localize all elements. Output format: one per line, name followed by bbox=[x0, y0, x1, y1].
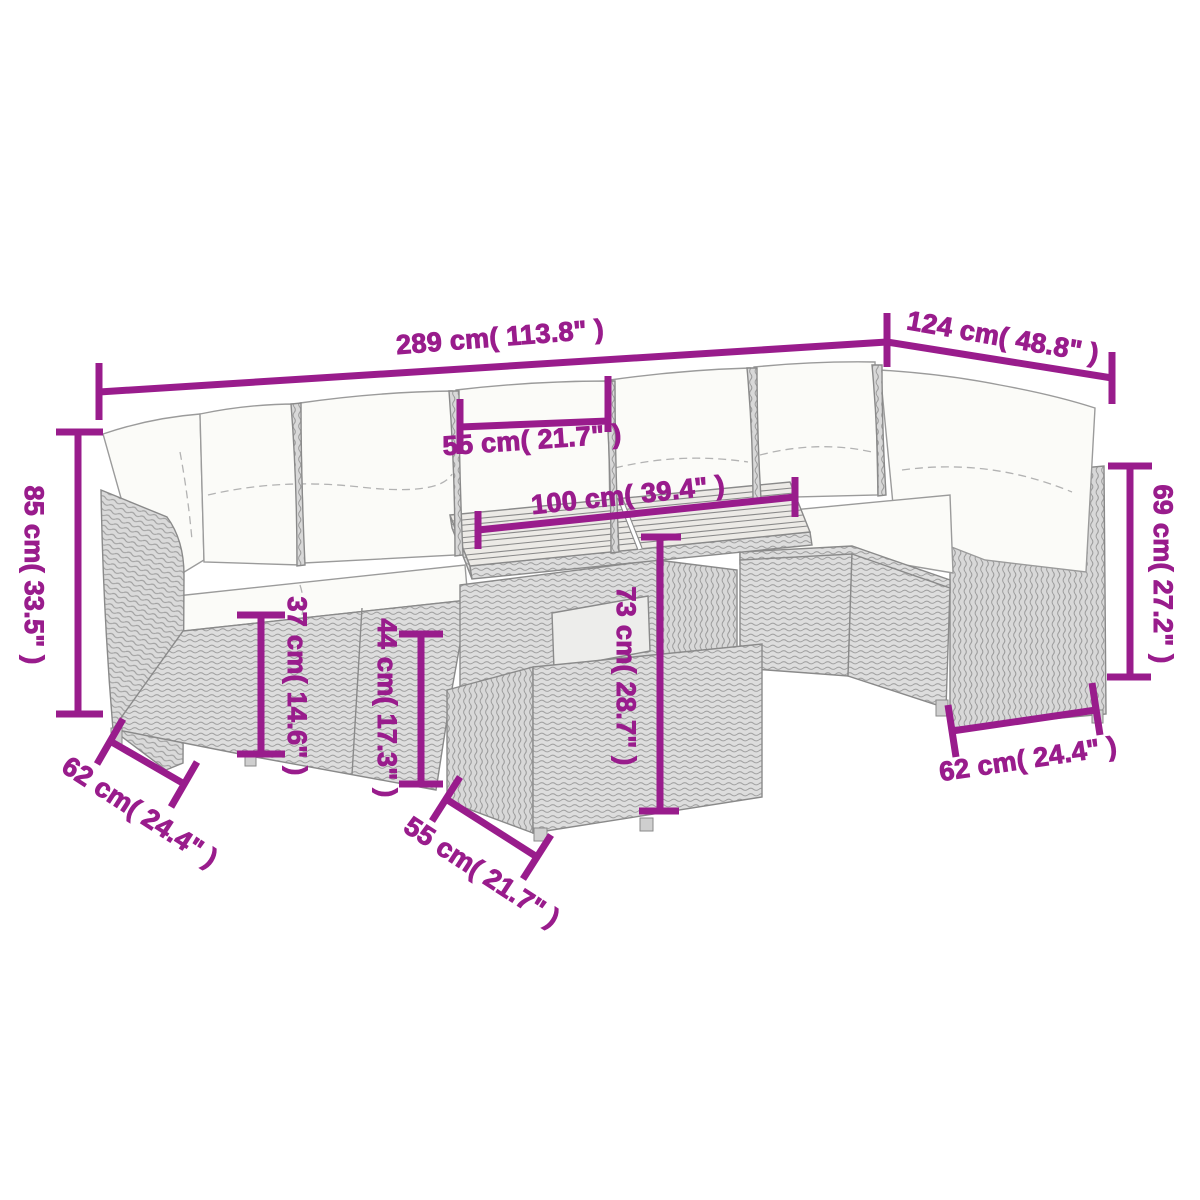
dimension-label: 44 cm( 17.3" ) bbox=[372, 618, 402, 797]
dimension-cap bbox=[171, 762, 197, 807]
dimension-cap bbox=[523, 835, 551, 879]
table-foot bbox=[640, 818, 653, 831]
dimension-label: 62 cm( 24.4" ) bbox=[937, 731, 1119, 787]
dimension-label: 73 cm( 28.7" ) bbox=[611, 586, 641, 765]
table-base-front bbox=[533, 644, 762, 833]
dimension-label: 85 cm( 33.5" ) bbox=[19, 485, 49, 664]
furniture-diagram-canvas: 289 cm( 113.8" ) 124 cm( 48.8" ) 55 cm( … bbox=[0, 0, 1200, 1200]
back-cushion bbox=[300, 391, 456, 563]
back-cushion bbox=[754, 362, 878, 498]
dimension-diagram: 289 cm( 113.8" ) 124 cm( 48.8" ) 55 cm( … bbox=[0, 0, 1200, 1200]
dimension-label: 37 cm( 14.6" ) bbox=[282, 596, 312, 775]
dimension-label: 289 cm( 113.8" ) bbox=[395, 314, 605, 360]
back-cushion bbox=[200, 404, 300, 565]
dim-right-height: 69 cm( 27.2" ) bbox=[1107, 466, 1178, 677]
dim-left-height: 85 cm( 33.5" ) bbox=[19, 432, 103, 714]
dimension-label: 69 cm( 27.2" ) bbox=[1148, 484, 1178, 663]
dimension-label: 62 cm( 24.4" ) bbox=[57, 751, 224, 874]
